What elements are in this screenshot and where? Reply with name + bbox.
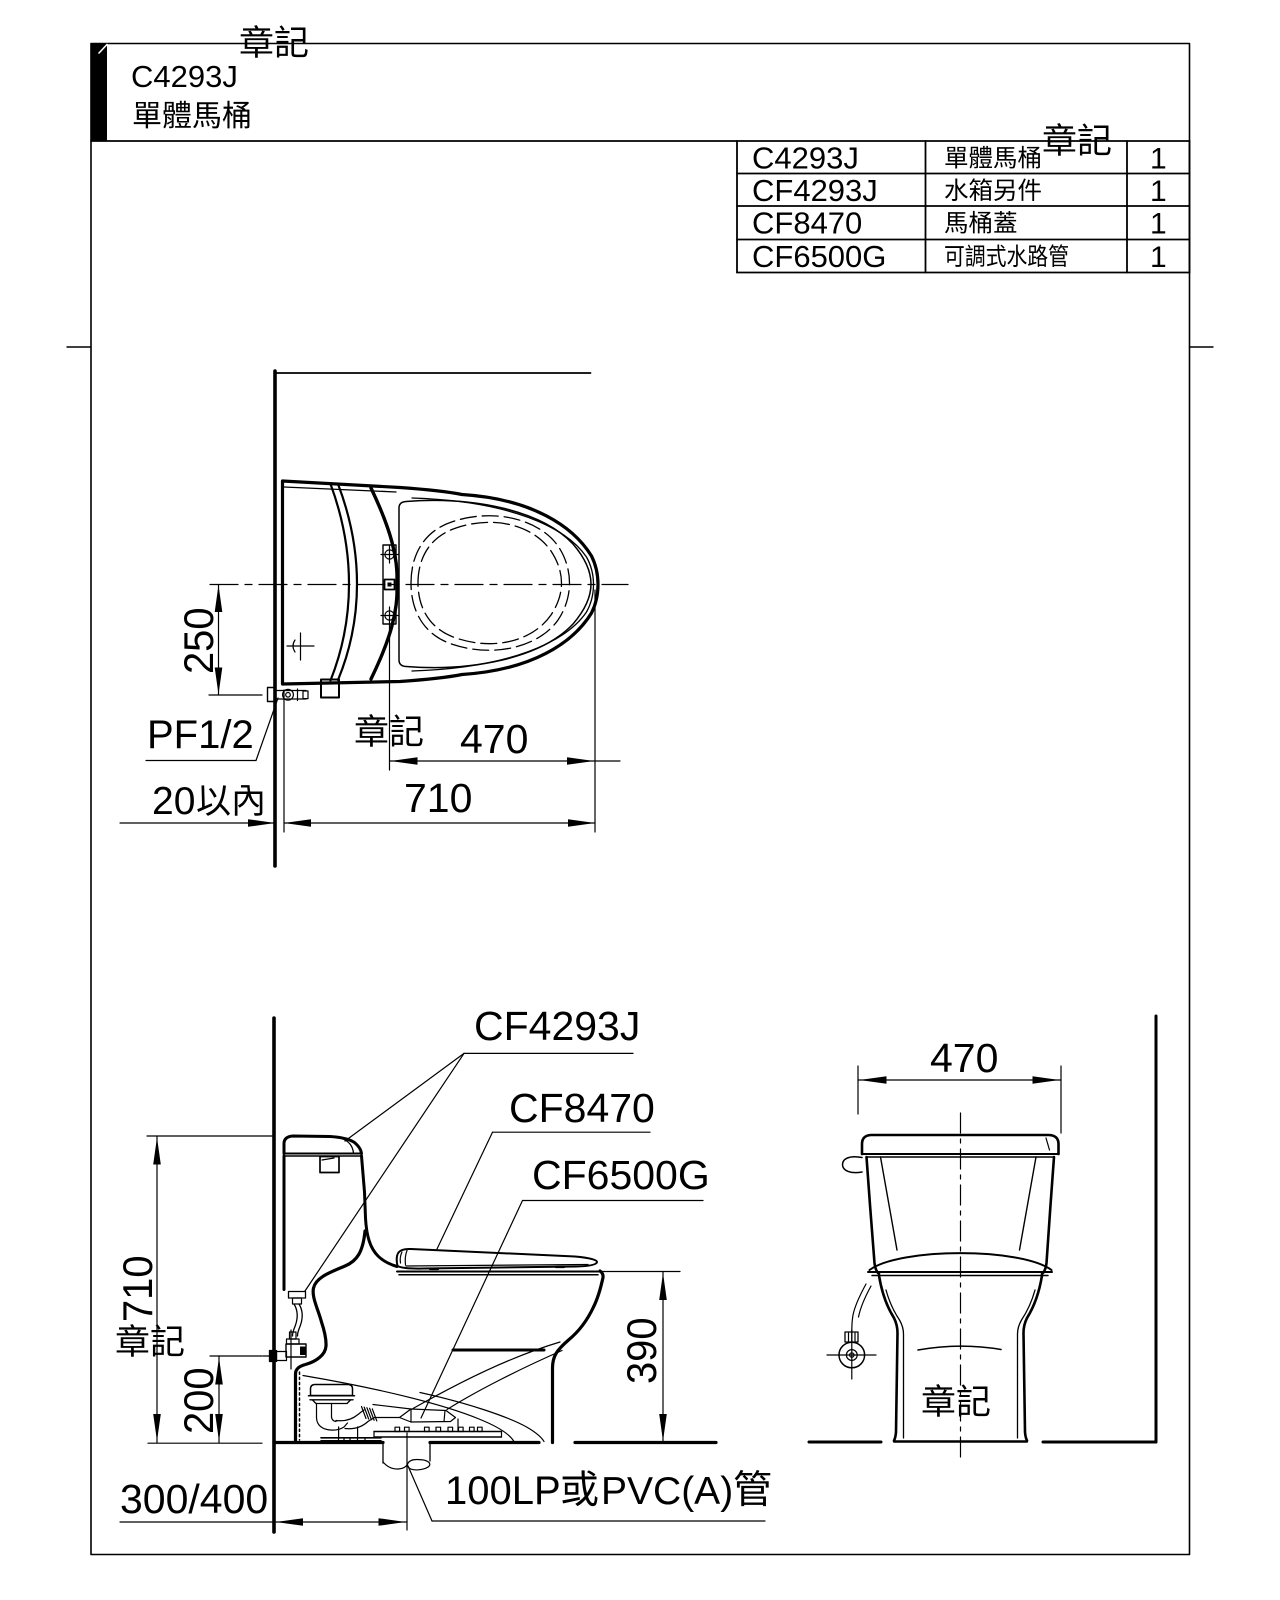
- svg-text:710: 710: [404, 775, 472, 821]
- svg-text:CF8470: CF8470: [752, 206, 862, 241]
- svg-text:250: 250: [175, 607, 222, 674]
- svg-text:470: 470: [930, 1035, 998, 1081]
- svg-text:PVC(A): PVC(A): [601, 1470, 733, 1513]
- svg-text:CF8470: CF8470: [509, 1085, 655, 1131]
- svg-text:1: 1: [1150, 143, 1167, 176]
- svg-text:1: 1: [1150, 208, 1167, 241]
- svg-text:CF4293J: CF4293J: [752, 173, 878, 208]
- svg-text:CF6500G: CF6500G: [532, 1152, 710, 1198]
- svg-text:390: 390: [618, 1317, 665, 1384]
- svg-text:300/400: 300/400: [120, 1476, 268, 1522]
- svg-text:200: 200: [175, 1367, 222, 1434]
- svg-text:C4293J: C4293J: [131, 59, 238, 94]
- svg-text:470: 470: [460, 716, 528, 762]
- svg-text:20: 20: [152, 780, 195, 823]
- svg-text:100LP: 100LP: [445, 1469, 561, 1513]
- svg-text:PF1/2: PF1/2: [147, 713, 254, 757]
- svg-text:CF4293J: CF4293J: [474, 1003, 640, 1049]
- svg-text:CF6500G: CF6500G: [752, 239, 886, 274]
- svg-text:C4293J: C4293J: [752, 141, 859, 176]
- svg-text:1: 1: [1150, 241, 1167, 274]
- svg-text:710: 710: [114, 1255, 161, 1322]
- svg-text:1: 1: [1150, 175, 1167, 208]
